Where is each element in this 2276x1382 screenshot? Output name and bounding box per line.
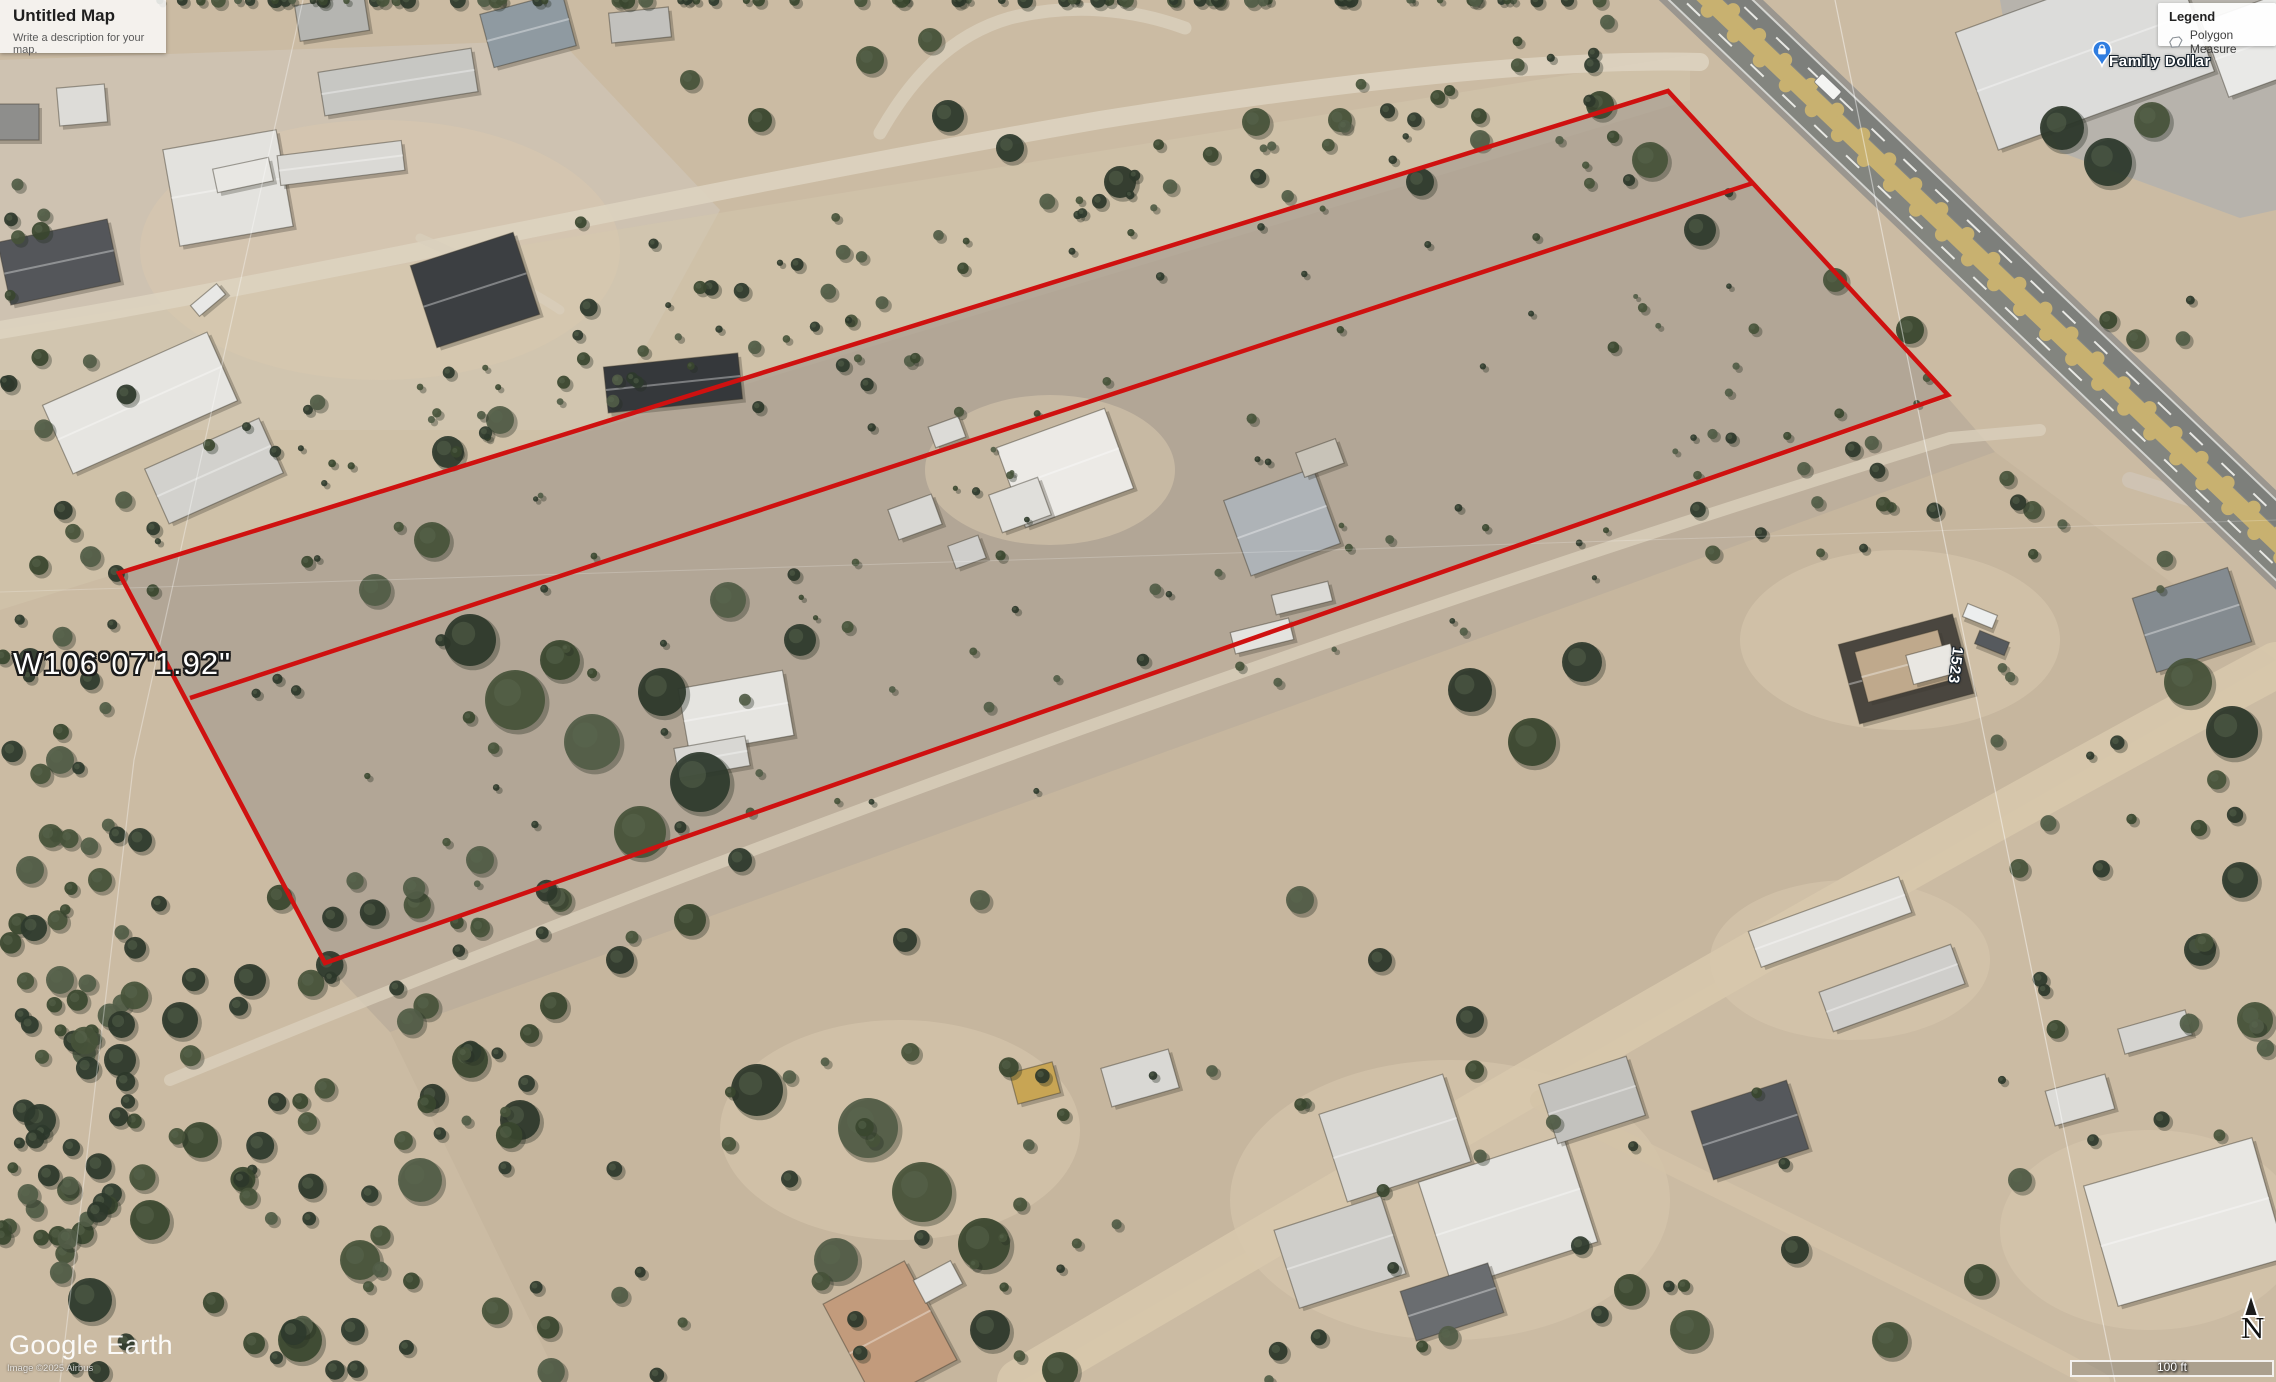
north-arrow[interactable]: N xyxy=(2236,1292,2266,1344)
scale-label: 100 ft xyxy=(2072,1360,2272,1374)
imagery-attribution: Image ©2025 Airbus xyxy=(7,1363,93,1374)
legend-item-label: Polygon Measure xyxy=(2190,28,2276,56)
legend-title: Legend xyxy=(2169,9,2215,24)
map-viewport[interactable]: W106°07'1.92" 1523 Family Dollar Untitle… xyxy=(0,0,2276,1382)
map-description-placeholder: Write a description for your map. xyxy=(13,32,166,56)
legend-panel: Legend Polygon Measure xyxy=(2158,3,2276,46)
north-label: N xyxy=(2241,1314,2265,1345)
google-earth-watermark: Google Earth xyxy=(9,1330,173,1361)
scale-bar: 100 ft xyxy=(2070,1360,2274,1377)
satellite-imagery-canvas xyxy=(0,0,2276,1382)
map-title: Untitled Map xyxy=(13,6,115,26)
map-title-panel[interactable]: Untitled Map Write a description for you… xyxy=(0,0,166,53)
polygon-icon xyxy=(2169,36,2183,49)
longitude-label: W106°07'1.92" xyxy=(13,646,231,682)
legend-item-polygon-measure[interactable]: Polygon Measure xyxy=(2169,28,2276,56)
